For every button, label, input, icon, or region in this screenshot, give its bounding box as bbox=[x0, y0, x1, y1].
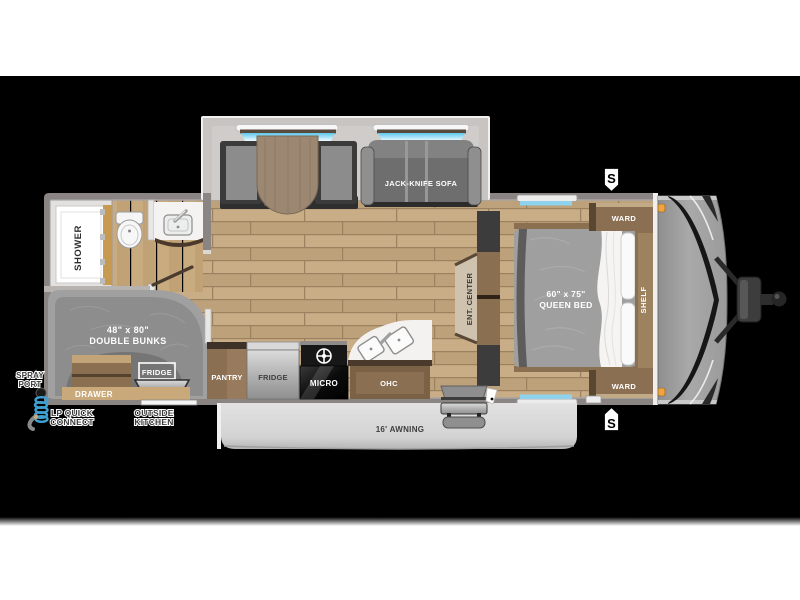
svg-text:MICRO: MICRO bbox=[310, 379, 338, 388]
svg-text:16' AWNING: 16' AWNING bbox=[376, 425, 425, 434]
svg-text:SHELF: SHELF bbox=[639, 286, 648, 313]
svg-text:DRAWER: DRAWER bbox=[75, 390, 113, 399]
svg-text:OHC: OHC bbox=[380, 379, 398, 388]
svg-text:S: S bbox=[607, 171, 616, 186]
svg-text:FRIDGE: FRIDGE bbox=[142, 368, 172, 377]
svg-text:PORT: PORT bbox=[18, 380, 41, 389]
svg-text:DOUBLE BUNKS: DOUBLE BUNKS bbox=[89, 336, 166, 346]
svg-text:JACK-KNIFE SOFA: JACK-KNIFE SOFA bbox=[385, 179, 458, 188]
svg-text:SPRAY: SPRAY bbox=[16, 371, 44, 380]
svg-text:SHOWER: SHOWER bbox=[73, 225, 84, 271]
svg-text:WARD: WARD bbox=[612, 214, 637, 223]
svg-text:ENT. CENTER: ENT. CENTER bbox=[465, 272, 474, 325]
svg-text:60" x 75": 60" x 75" bbox=[546, 289, 585, 299]
svg-text:QUEEN BED: QUEEN BED bbox=[539, 300, 592, 310]
svg-text:FRIDGE: FRIDGE bbox=[258, 373, 288, 382]
svg-text:PANTRY: PANTRY bbox=[211, 373, 242, 382]
svg-text:KITCHEN: KITCHEN bbox=[134, 417, 173, 427]
svg-text:48" x 80": 48" x 80" bbox=[107, 325, 149, 335]
svg-text:S: S bbox=[607, 416, 616, 431]
svg-text:CONNECT: CONNECT bbox=[50, 417, 94, 427]
svg-text:WARD: WARD bbox=[612, 382, 637, 391]
